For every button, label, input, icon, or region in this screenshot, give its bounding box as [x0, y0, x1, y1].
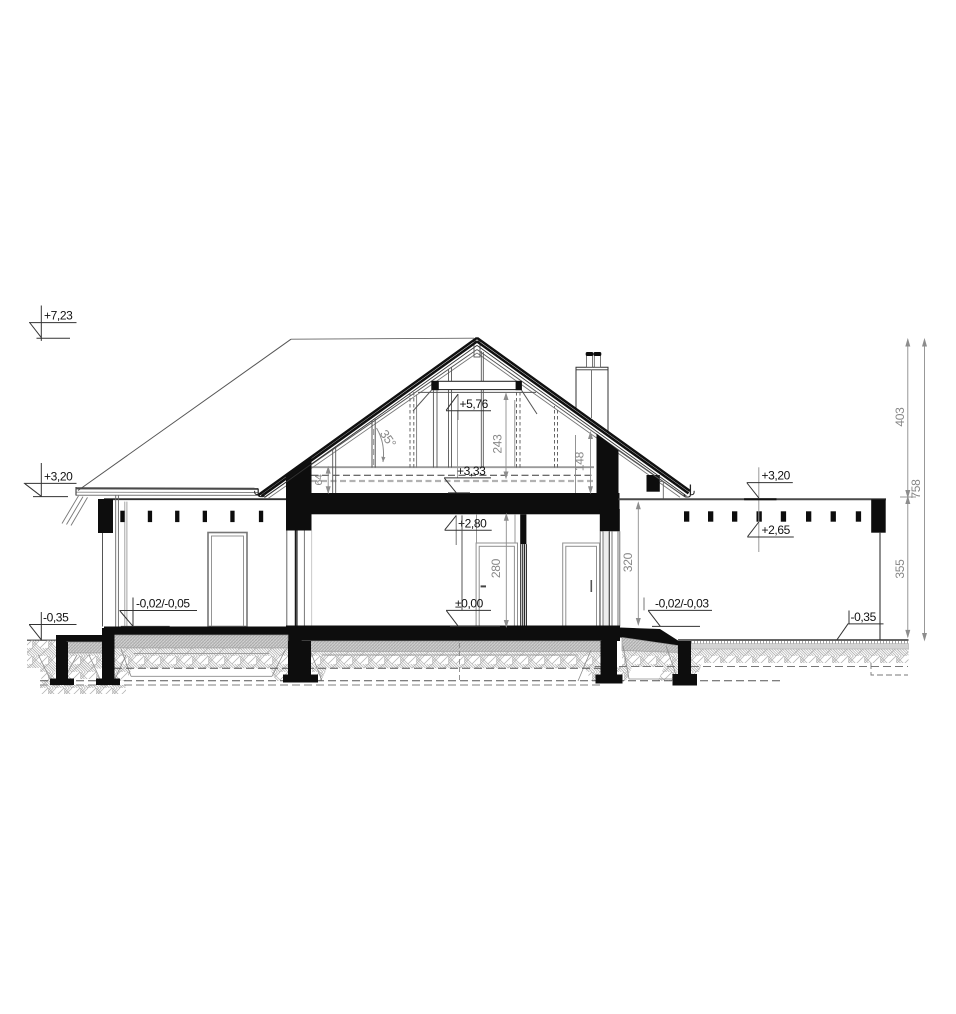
svg-text:-0,35: -0,35	[43, 611, 69, 625]
svg-text:+2,65: +2,65	[762, 523, 791, 537]
svg-text:+7,23: +7,23	[44, 309, 73, 323]
svg-text:+3,20: +3,20	[44, 469, 73, 483]
svg-text:280: 280	[489, 558, 503, 578]
svg-text:+5,76: +5,76	[460, 397, 489, 411]
svg-text:+3,33: +3,33	[457, 464, 486, 478]
svg-text:-0,35: -0,35	[851, 610, 877, 624]
svg-text:320: 320	[621, 552, 635, 572]
svg-text:-0,02/-0,03: -0,02/-0,03	[655, 596, 709, 610]
svg-text:64: 64	[313, 474, 325, 486]
svg-text:±0,00: ±0,00	[455, 596, 484, 610]
svg-text:148: 148	[573, 451, 587, 471]
svg-text:-0,02/-0,05: -0,02/-0,05	[136, 597, 190, 611]
svg-text:+3,20: +3,20	[762, 469, 791, 483]
svg-text:355: 355	[893, 559, 907, 579]
svg-text:758: 758	[909, 479, 923, 499]
svg-text:243: 243	[491, 434, 505, 454]
svg-text:403: 403	[893, 407, 907, 427]
